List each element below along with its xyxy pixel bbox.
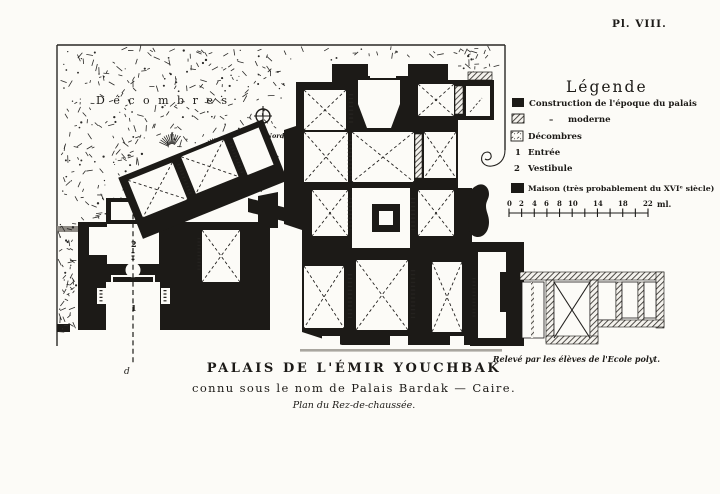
- wall-chip: [57, 324, 70, 332]
- maison-mass-icon: [468, 184, 489, 237]
- legend-item-vestibule: 2 Vestibule: [514, 164, 573, 174]
- legend-item-label: Vestibule: [527, 164, 573, 174]
- central-block: [284, 64, 502, 352]
- scale-tick-label: 6: [544, 199, 549, 208]
- scale-tick-label: 18: [618, 199, 628, 208]
- entrance-marker: 1: [131, 303, 137, 313]
- legend-item-epoque: Construction de l'époque du palais: [512, 98, 697, 109]
- hatched-square-icon: [512, 114, 524, 123]
- legend-item-decombres: Décombres: [511, 131, 582, 142]
- right-wing: [470, 242, 524, 346]
- numeral-1-icon: 1: [515, 148, 521, 158]
- legend-item-label: moderne: [568, 115, 611, 125]
- axis-label: d: [124, 367, 130, 377]
- caption-subtitle: connu sous le nom de Palais Bardak — Cai…: [192, 381, 516, 395]
- modern-annex: [520, 272, 664, 344]
- legend-item-label: Construction de l'époque du palais: [529, 98, 697, 109]
- rubble-area-label: Décombres: [96, 94, 236, 107]
- scale-tick-label: 8: [557, 199, 562, 208]
- legend-item-maison: Maison (très probablement du XVIᵉ siècle…: [511, 183, 714, 193]
- legend-item-label: Décombres: [528, 131, 582, 142]
- scale-unit-label: ml.: [657, 199, 672, 209]
- legend-item-moderne: – moderne: [512, 114, 611, 125]
- black-square-icon: [512, 98, 524, 107]
- legend-title: Légende: [566, 78, 648, 96]
- legend-item-label: Maison (très probablement du XVIᵉ siècle…: [528, 184, 714, 193]
- legend-item-label: Entrée: [528, 147, 561, 158]
- scale-tick-label: 14: [593, 199, 603, 208]
- scale-tick-label: 10: [568, 199, 578, 208]
- black-square-icon: [511, 183, 524, 193]
- building-plan: 2 1 d: [78, 64, 664, 377]
- scanned-plate-page: Pl. VIII. Décombres Nord: [0, 0, 720, 494]
- vestibule-marker: 2: [131, 239, 137, 249]
- caption-title: PALAIS DE L'ÉMIR YOUCHBAK: [207, 360, 502, 376]
- legend-item-entree: 1 Entrée: [515, 147, 561, 158]
- numeral-2-icon: 2: [514, 164, 520, 174]
- legend: Légende Construction de l'époque du pala…: [507, 78, 714, 217]
- scale-tick-label: 22: [643, 199, 653, 208]
- legend-ditto-mark: –: [549, 115, 553, 125]
- scale-tick-label: 0: [507, 199, 512, 208]
- scale-tick-label: 4: [532, 199, 537, 208]
- plan-drawing: Pl. VIII. Décombres Nord: [0, 0, 720, 494]
- plate-label: Pl. VIII.: [612, 18, 667, 30]
- captions: Relevé par les élèves de l'Ecole polyt. …: [192, 354, 660, 411]
- survey-credit: Relevé par les élèves de l'Ecole polyt.: [492, 354, 660, 364]
- scale-tick-label: 2: [519, 199, 524, 208]
- caption-plan-note: Plan du Rez-de-chaussée.: [292, 400, 416, 411]
- scale-bar: 0 2 4 6 8 10 14 18 22 ml.: [507, 199, 672, 217]
- scroll-ornament-icon: [482, 150, 505, 166]
- rubble-square-icon: [511, 131, 523, 141]
